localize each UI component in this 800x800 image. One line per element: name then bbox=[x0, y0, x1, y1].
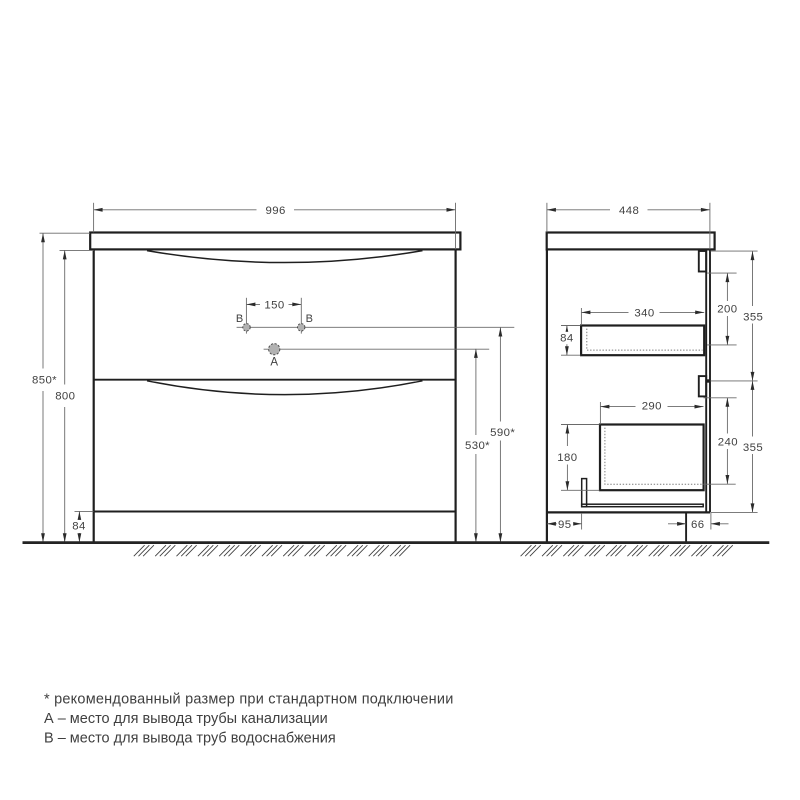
svg-text:В – место для вывода труб водо: В – место для вывода труб водоснабжения bbox=[44, 730, 336, 746]
svg-text:150: 150 bbox=[264, 299, 284, 311]
svg-text:996: 996 bbox=[265, 205, 285, 217]
svg-text:530*: 530* bbox=[465, 440, 490, 452]
svg-text:95: 95 bbox=[558, 519, 571, 531]
svg-text:84: 84 bbox=[72, 520, 85, 532]
svg-text:355: 355 bbox=[743, 312, 763, 324]
svg-text:180: 180 bbox=[557, 452, 577, 464]
svg-text:66: 66 bbox=[691, 519, 704, 531]
svg-text:84: 84 bbox=[560, 332, 573, 344]
svg-text:800: 800 bbox=[55, 390, 75, 402]
svg-text:A: A bbox=[270, 357, 278, 369]
svg-text:B: B bbox=[236, 313, 244, 325]
svg-text:290: 290 bbox=[642, 401, 662, 413]
svg-text:355: 355 bbox=[743, 442, 763, 454]
svg-text:240: 240 bbox=[718, 436, 738, 448]
svg-text:590*: 590* bbox=[490, 427, 515, 439]
svg-text:200: 200 bbox=[717, 303, 737, 315]
svg-text:448: 448 bbox=[619, 205, 639, 217]
svg-text:B: B bbox=[306, 313, 314, 325]
svg-text:340: 340 bbox=[634, 307, 654, 319]
svg-text:А – место для вывода трубы кан: А – место для вывода трубы канализации bbox=[44, 711, 328, 727]
svg-text:* рекомендованный размер при с: * рекомендованный размер при стандартном… bbox=[44, 691, 454, 707]
